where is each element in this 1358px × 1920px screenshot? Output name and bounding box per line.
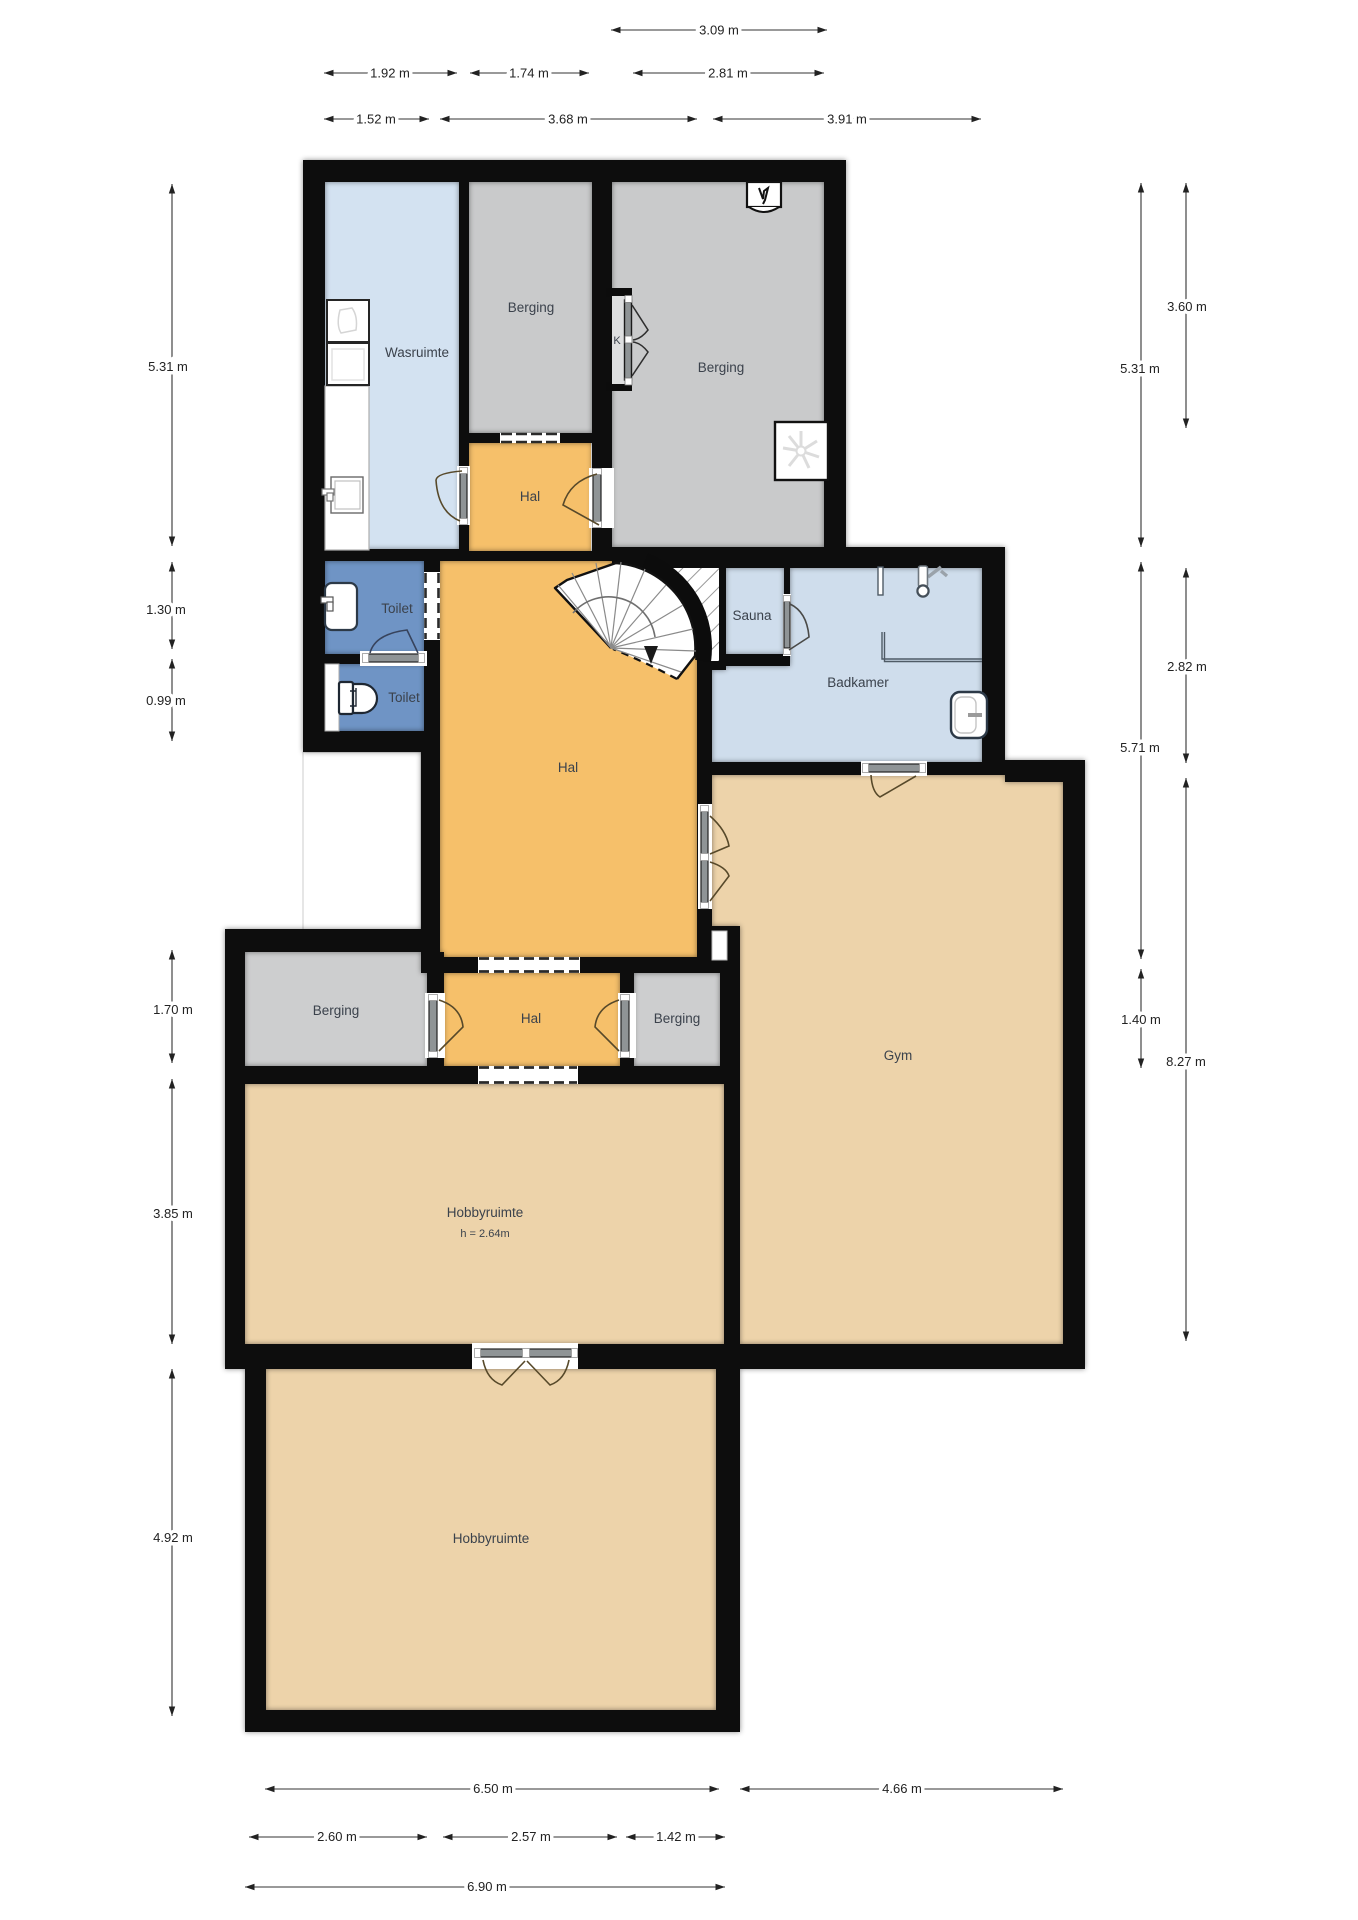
svg-text:6.90 m: 6.90 m [467, 1879, 507, 1894]
svg-text:Berging: Berging [313, 1003, 360, 1018]
svg-text:Berging: Berging [508, 300, 555, 315]
svg-text:3.68 m: 3.68 m [548, 112, 588, 127]
svg-text:1.74 m: 1.74 m [509, 66, 549, 81]
svg-text:Toilet: Toilet [388, 690, 420, 705]
svg-text:Badkamer: Badkamer [827, 675, 889, 690]
svg-text:2.82 m: 2.82 m [1167, 659, 1207, 674]
svg-text:Hobbyruimte: Hobbyruimte [447, 1205, 524, 1220]
svg-text:2.60 m: 2.60 m [317, 1829, 357, 1844]
svg-text:Gym: Gym [884, 1048, 913, 1063]
svg-text:Hobbyruimte: Hobbyruimte [453, 1531, 530, 1546]
svg-text:h = 2.64m: h = 2.64m [460, 1228, 509, 1240]
svg-text:8.27 m: 8.27 m [1166, 1054, 1206, 1069]
svg-text:Wasruimte: Wasruimte [385, 345, 449, 360]
svg-text:Hal: Hal [521, 1011, 541, 1026]
svg-text:1.70 m: 1.70 m [153, 1002, 193, 1017]
svg-text:5.31 m: 5.31 m [1120, 361, 1160, 376]
svg-text:Berging: Berging [698, 360, 745, 375]
svg-text:0.99 m: 0.99 m [146, 693, 186, 708]
svg-text:Berging: Berging [654, 1011, 701, 1026]
svg-text:1.52 m: 1.52 m [356, 112, 396, 127]
svg-text:2.81 m: 2.81 m [708, 66, 748, 81]
svg-text:3.91 m: 3.91 m [827, 112, 867, 127]
svg-text:1.42 m: 1.42 m [656, 1829, 696, 1844]
svg-text:3.85 m: 3.85 m [153, 1206, 193, 1221]
svg-text:2.57 m: 2.57 m [511, 1829, 551, 1844]
svg-text:4.66 m: 4.66 m [882, 1781, 922, 1796]
svg-text:4.92 m: 4.92 m [153, 1530, 193, 1545]
svg-text:3.09 m: 3.09 m [699, 23, 739, 38]
svg-text:Hal: Hal [558, 760, 578, 775]
svg-text:1.92 m: 1.92 m [370, 66, 410, 81]
svg-text:5.71 m: 5.71 m [1120, 740, 1160, 755]
svg-text:1.30 m: 1.30 m [146, 602, 186, 617]
svg-text:1.40 m: 1.40 m [1121, 1012, 1161, 1027]
svg-text:6.50 m: 6.50 m [473, 1781, 513, 1796]
svg-text:Toilet: Toilet [381, 601, 413, 616]
svg-text:Hal: Hal [520, 489, 540, 504]
svg-text:3.60 m: 3.60 m [1167, 299, 1207, 314]
svg-text:K: K [613, 335, 621, 347]
svg-text:Sauna: Sauna [732, 608, 772, 623]
svg-text:5.31 m: 5.31 m [148, 359, 188, 374]
